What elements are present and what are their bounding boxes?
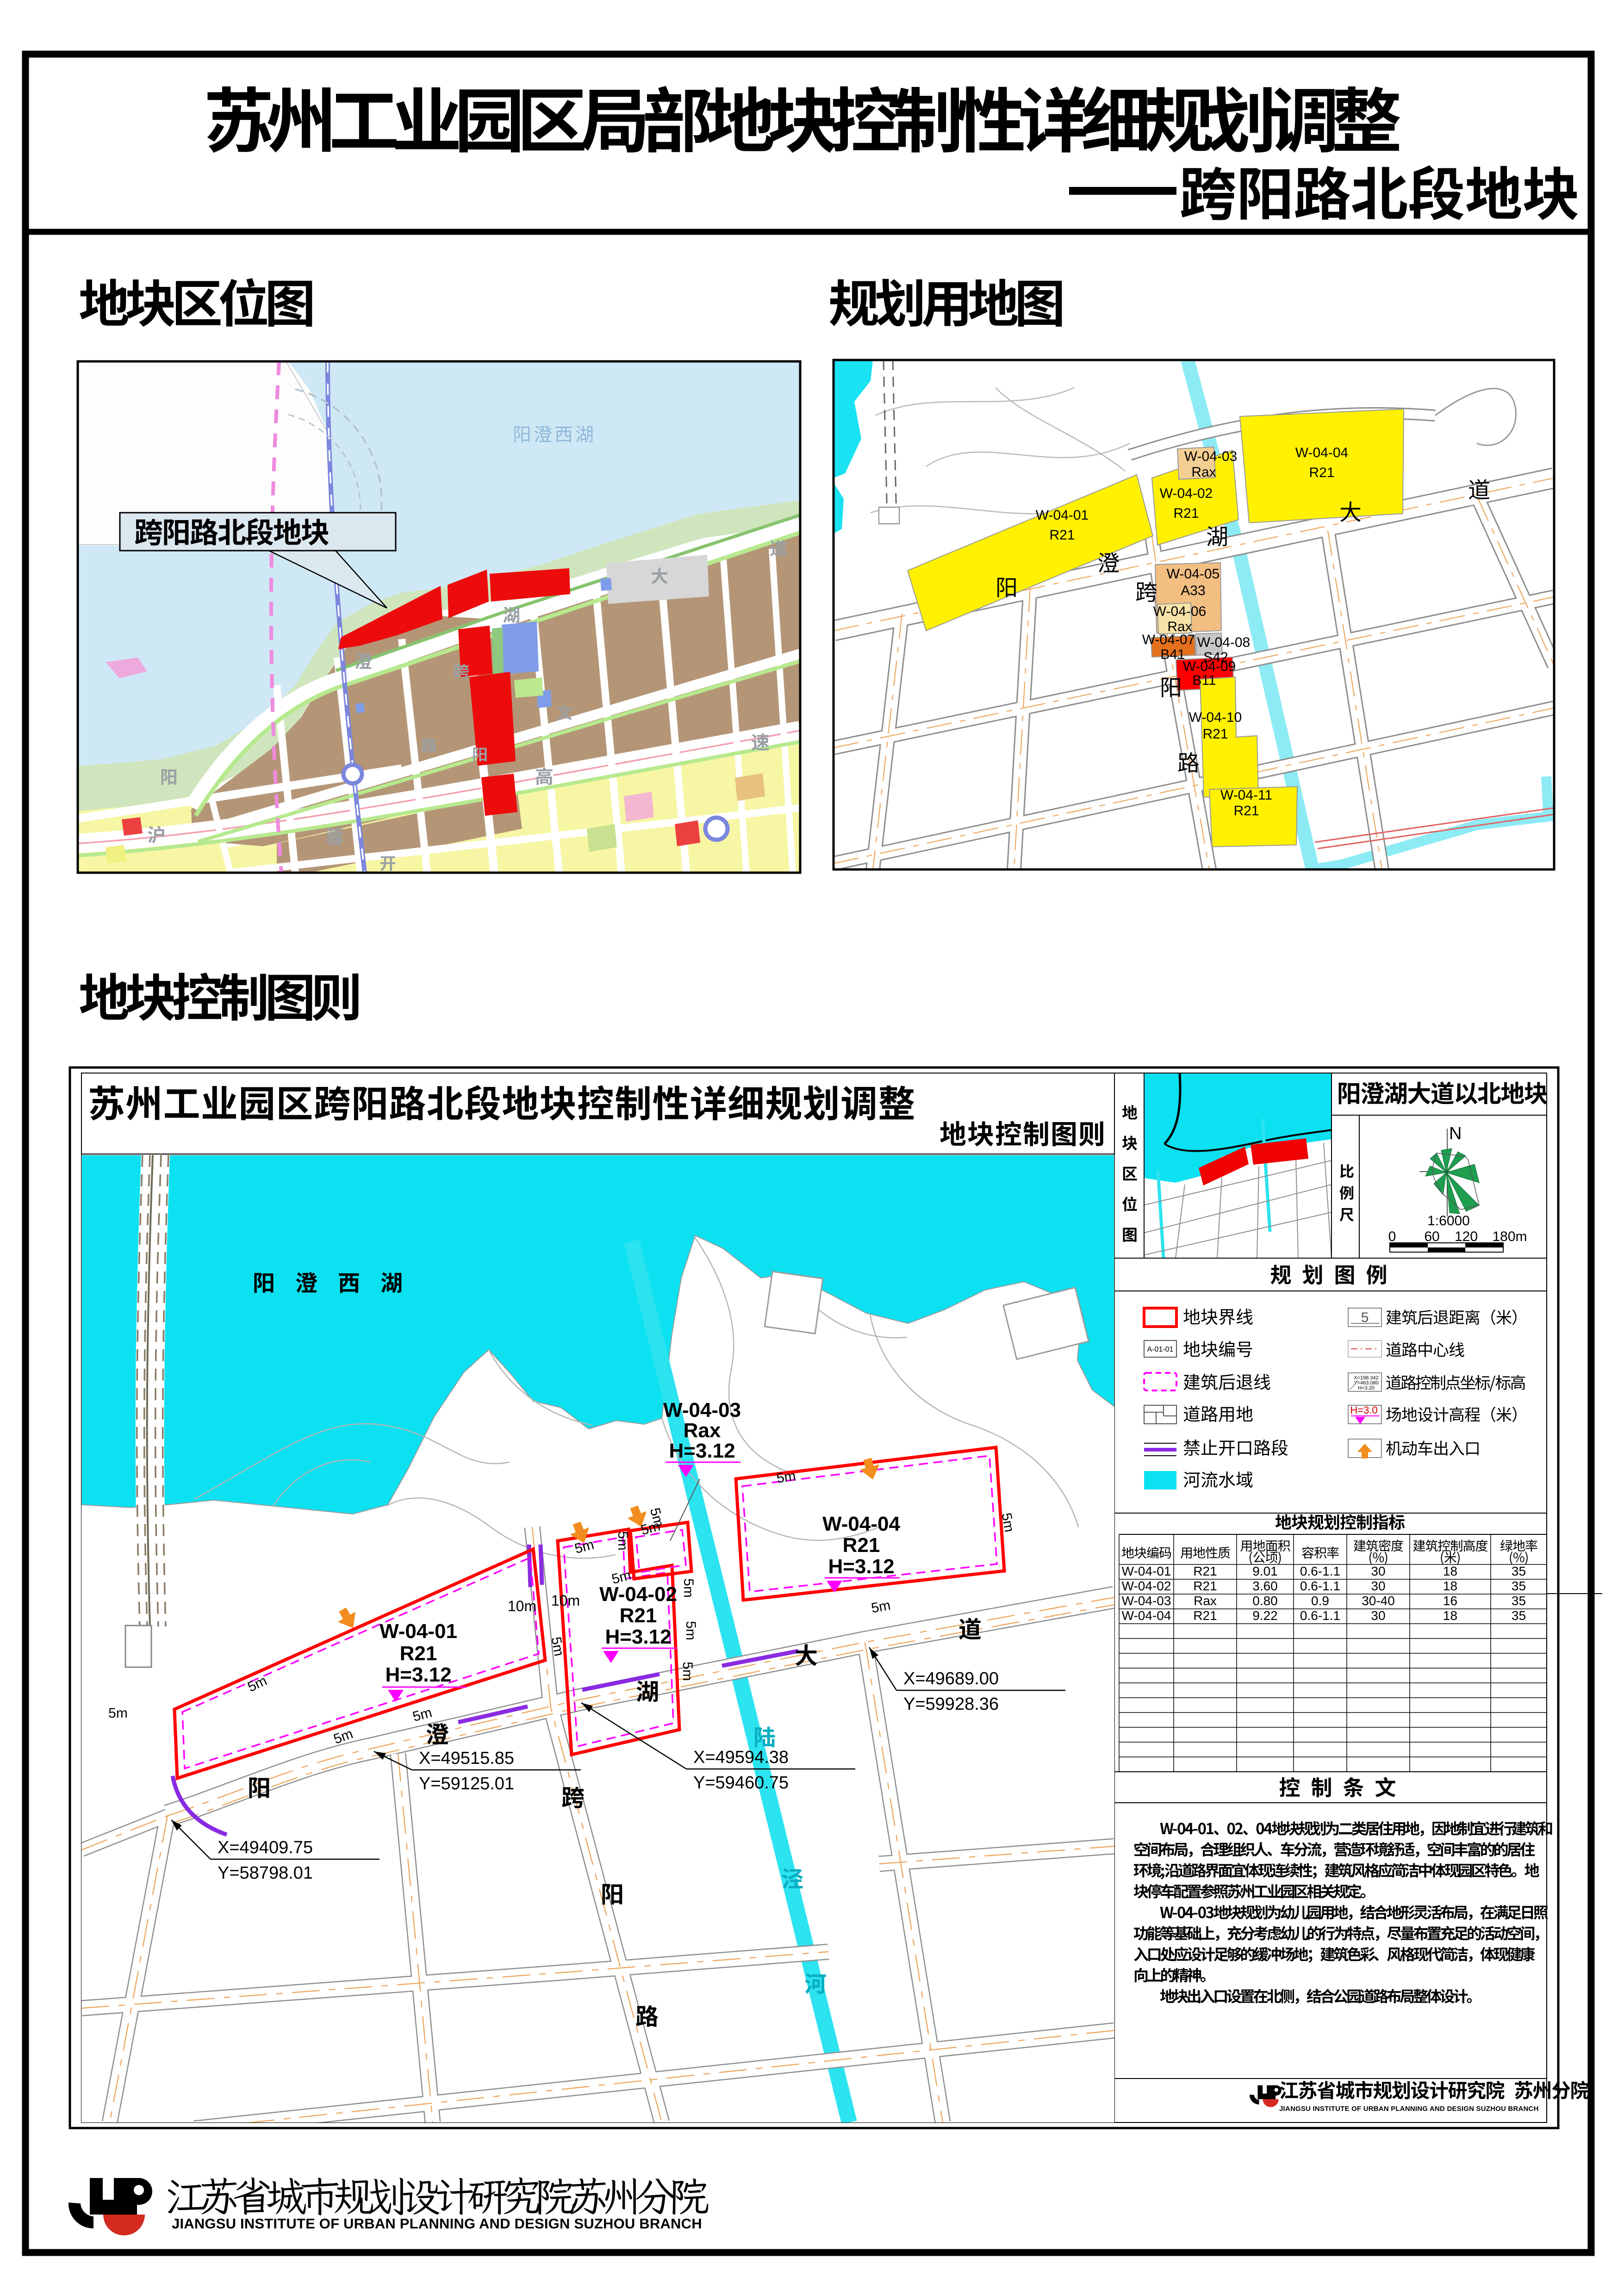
svg-text:180m: 180m	[1492, 1229, 1527, 1244]
svg-text:W-04-08: W-04-08	[1197, 635, 1251, 650]
svg-text:H=3.0: H=3.0	[1350, 1404, 1377, 1416]
svg-text:H=3.20: H=3.20	[1358, 1385, 1375, 1391]
svg-text:9.01: 9.01	[1252, 1564, 1278, 1578]
svg-text:W-04-01: W-04-01	[1036, 508, 1089, 523]
svg-text:W-04-05: W-04-05	[1167, 566, 1220, 582]
svg-text:R21: R21	[620, 1604, 657, 1627]
svg-text:0.6-1.1: 0.6-1.1	[1300, 1608, 1340, 1623]
svg-text:1:6000: 1:6000	[1427, 1213, 1470, 1229]
svg-text:5m: 5m	[108, 1706, 128, 1721]
svg-text:R21: R21	[400, 1642, 437, 1665]
svg-text:A-01-01: A-01-01	[1147, 1346, 1174, 1353]
svg-text:A33: A33	[1181, 583, 1205, 598]
svg-text:W-04-09: W-04-09	[1183, 659, 1236, 674]
svg-text:10m: 10m	[508, 1598, 536, 1614]
svg-text:Y=59125.01: Y=59125.01	[419, 1774, 514, 1793]
svg-text:5m: 5m	[683, 1621, 698, 1640]
svg-text:R21: R21	[1193, 1608, 1217, 1623]
svg-text:W-04-07: W-04-07	[1142, 632, 1195, 647]
svg-text:R21: R21	[1049, 527, 1075, 543]
svg-text:18: 18	[1443, 1608, 1457, 1623]
svg-text:W-04-06: W-04-06	[1153, 604, 1207, 619]
svg-text:5m: 5m	[681, 1578, 696, 1598]
svg-text:35: 35	[1512, 1564, 1526, 1578]
svg-text:35: 35	[1512, 1594, 1526, 1608]
svg-text:N: N	[1449, 1124, 1462, 1143]
svg-text:Y=59928.36: Y=59928.36	[903, 1694, 999, 1714]
svg-text:R21: R21	[1173, 506, 1199, 521]
svg-text:Rax: Rax	[1191, 465, 1216, 480]
svg-text:30: 30	[1371, 1564, 1385, 1578]
svg-text:Rax: Rax	[684, 1419, 721, 1442]
svg-text:R21: R21	[843, 1534, 880, 1557]
svg-text:W-04-02: W-04-02	[1122, 1579, 1171, 1593]
svg-text:H=3.12: H=3.12	[828, 1555, 894, 1578]
svg-text:10m: 10m	[551, 1592, 580, 1609]
svg-text:30-40: 30-40	[1362, 1594, 1395, 1608]
svg-text:W-04-02: W-04-02	[1160, 486, 1213, 501]
svg-text:0.6-1.1: 0.6-1.1	[1300, 1579, 1340, 1593]
svg-text:W-04-10: W-04-10	[1189, 710, 1242, 725]
svg-text:120: 120	[1455, 1229, 1478, 1244]
svg-text:18: 18	[1443, 1579, 1457, 1593]
svg-text:18: 18	[1443, 1564, 1457, 1578]
svg-text:X=49689.00: X=49689.00	[903, 1669, 999, 1688]
svg-text:X=49594.38: X=49594.38	[693, 1748, 789, 1767]
svg-text:Rax: Rax	[1194, 1594, 1217, 1608]
svg-text:Y=59460.75: Y=59460.75	[693, 1773, 789, 1793]
svg-text:R21: R21	[1193, 1564, 1217, 1578]
svg-text:16: 16	[1443, 1594, 1457, 1608]
svg-text:H=3.12: H=3.12	[385, 1663, 451, 1686]
svg-text:H=3.12: H=3.12	[669, 1440, 735, 1462]
svg-text:W-04-04: W-04-04	[822, 1513, 900, 1535]
svg-text:60: 60	[1424, 1229, 1439, 1244]
svg-text:5m: 5m	[776, 1468, 797, 1486]
svg-text:W-04-03: W-04-03	[663, 1399, 741, 1421]
svg-text:0.6-1.1: 0.6-1.1	[1300, 1564, 1340, 1578]
svg-text:30: 30	[1371, 1579, 1385, 1593]
svg-text:R21: R21	[1233, 803, 1259, 819]
svg-text:B11: B11	[1192, 673, 1216, 688]
svg-text:R21: R21	[1193, 1579, 1217, 1593]
svg-text:30: 30	[1371, 1608, 1385, 1623]
svg-text:35: 35	[1512, 1608, 1526, 1623]
svg-text:X=49409.75: X=49409.75	[218, 1838, 313, 1857]
svg-text:9.22: 9.22	[1252, 1608, 1278, 1623]
svg-text:3.60: 3.60	[1252, 1579, 1278, 1593]
svg-text:JIANGSU INSTITUTE OF URBAN PLA: JIANGSU INSTITUTE OF URBAN PLANNING AND …	[172, 2215, 702, 2232]
svg-text:W-04-02: W-04-02	[599, 1583, 677, 1606]
svg-text:W-04-04: W-04-04	[1295, 445, 1349, 460]
svg-text:JIANGSU INSTITUTE OF URBAN PLA: JIANGSU INSTITUTE OF URBAN PLANNING AND …	[1279, 2105, 1539, 2113]
svg-text:B41: B41	[1160, 647, 1185, 662]
svg-text:0: 0	[1388, 1229, 1396, 1244]
svg-text:X=49515.85: X=49515.85	[419, 1749, 514, 1768]
svg-text:35: 35	[1512, 1579, 1526, 1593]
svg-text:R21: R21	[1202, 726, 1228, 742]
svg-text:W-04-03: W-04-03	[1184, 449, 1238, 464]
svg-text:H=3.12: H=3.12	[605, 1626, 671, 1648]
svg-text:Y=58798.01: Y=58798.01	[218, 1863, 313, 1883]
svg-text:5m: 5m	[680, 1662, 695, 1681]
svg-text:0.80: 0.80	[1252, 1594, 1278, 1608]
svg-text:W-04-03: W-04-03	[1122, 1594, 1171, 1608]
svg-text:W-04-11: W-04-11	[1220, 788, 1272, 803]
svg-text:W-04-01: W-04-01	[1122, 1564, 1171, 1578]
svg-text:W-04-01: W-04-01	[380, 1620, 457, 1643]
svg-text:5m: 5m	[615, 1531, 630, 1551]
svg-text:W-04-04: W-04-04	[1122, 1608, 1171, 1623]
svg-text:R21: R21	[1309, 465, 1334, 480]
svg-text:0.9: 0.9	[1311, 1594, 1329, 1608]
